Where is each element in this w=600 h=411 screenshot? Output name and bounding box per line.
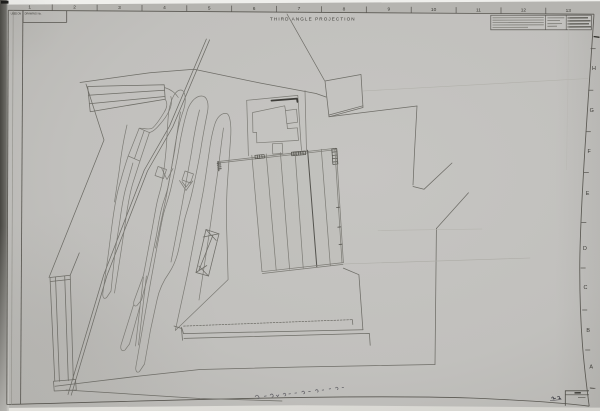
svg-text:9: 9 bbox=[387, 7, 390, 13]
svg-text:E: E bbox=[586, 191, 590, 197]
svg-text:H: H bbox=[592, 66, 596, 72]
svg-text:13: 13 bbox=[566, 8, 572, 14]
svg-text:12: 12 bbox=[521, 8, 527, 14]
svg-text:USED ON: USED ON bbox=[11, 12, 22, 16]
svg-text:THIRD ANGLE PROJECTION: THIRD ANGLE PROJECTION bbox=[270, 17, 356, 22]
svg-text:G: G bbox=[590, 108, 594, 114]
svg-text:A: A bbox=[589, 365, 593, 371]
svg-text:6: 6 bbox=[253, 6, 256, 12]
svg-text:2: 2 bbox=[73, 5, 76, 11]
svg-text:D: D bbox=[583, 246, 587, 252]
svg-text:10: 10 bbox=[431, 7, 437, 13]
svg-text:C: C bbox=[584, 285, 588, 291]
svg-text:11: 11 bbox=[476, 7, 481, 13]
svg-text:3: 3 bbox=[118, 5, 121, 11]
svg-text:8: 8 bbox=[343, 6, 346, 12]
svg-text:B: B bbox=[586, 328, 590, 334]
svg-text:5: 5 bbox=[208, 6, 211, 12]
svg-text:4: 4 bbox=[163, 5, 166, 11]
svg-text:7: 7 bbox=[298, 6, 301, 12]
svg-text:1: 1 bbox=[28, 4, 31, 10]
svg-text:DRAWING No.: DRAWING No. bbox=[25, 11, 42, 15]
